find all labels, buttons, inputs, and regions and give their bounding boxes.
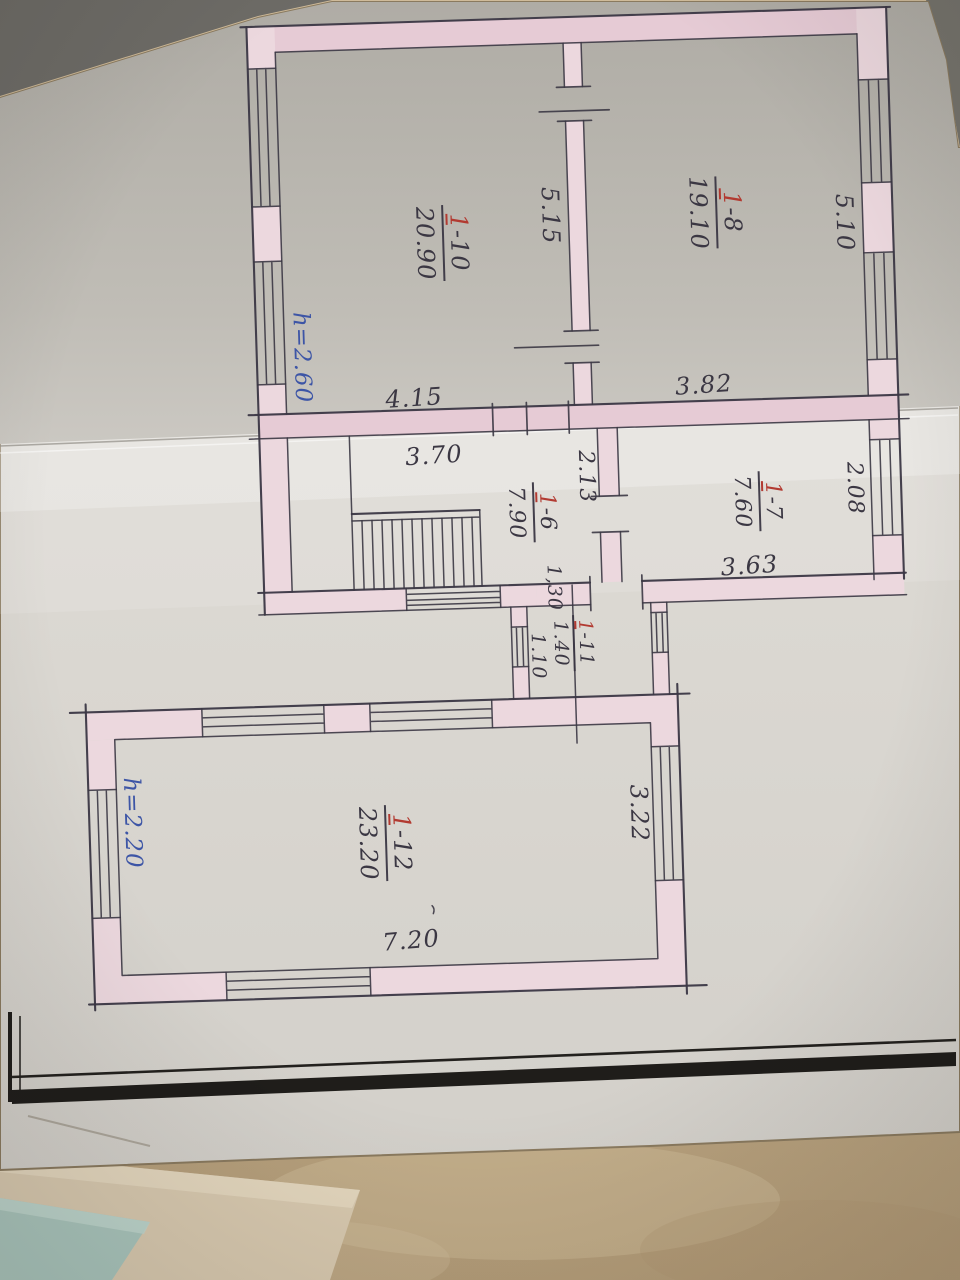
photo-vignette — [0, 0, 960, 1280]
photo-of-floor-plan: 1-10 20.90 5.15 1-8 19.10 5.10 h=2.60 4.… — [0, 0, 960, 1280]
